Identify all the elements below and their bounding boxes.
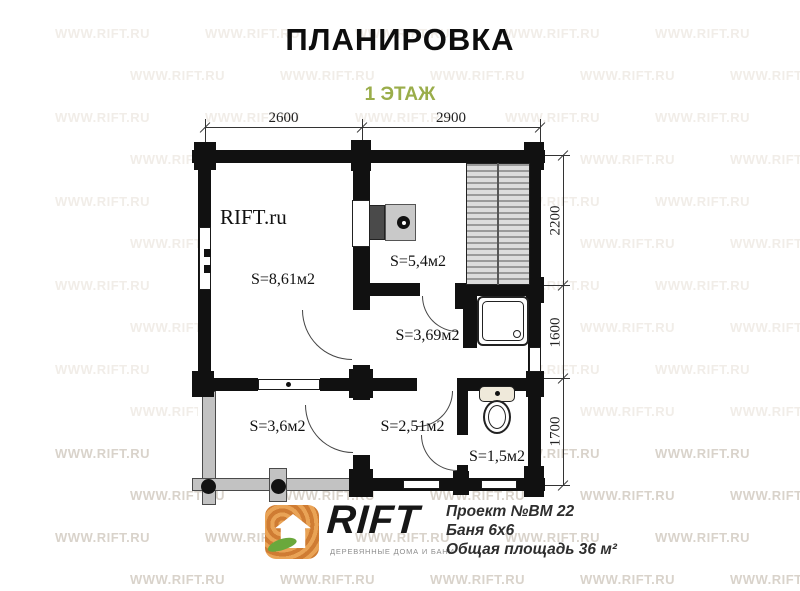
dimension-right-3: 1700: [548, 402, 565, 462]
project-area: Общая площадь 36 м²: [446, 540, 617, 559]
room-label-sauna: S=5,4м2: [373, 253, 463, 271]
watermark-text: WWW.RIFT.RU: [580, 68, 675, 83]
rift-logo-icon: [265, 505, 319, 559]
dimension-right-1: 2200: [548, 191, 565, 251]
watermark-text: WWW.RIFT.RU: [55, 110, 150, 125]
watermark-text: WWW.RIFT.RU: [730, 404, 800, 419]
dimension-top-left: 2600: [205, 110, 362, 127]
watermark-text: WWW.RIFT.RU: [55, 530, 150, 545]
project-number: Проект №ВМ 22: [446, 502, 617, 521]
room-label-washroom: S=3,69м2: [375, 327, 480, 345]
log-crossing: [192, 371, 214, 397]
log-crossing: [455, 283, 477, 309]
log-crossing: [349, 369, 373, 398]
plan-brand-label: RIFT.ru: [220, 205, 287, 230]
logo-tagline: ДЕРЕВЯННЫЕ ДОМА И БАНИ: [330, 547, 455, 556]
watermark-text: WWW.RIFT.RU: [730, 488, 800, 503]
window: [529, 347, 541, 372]
watermark-text: WWW.RIFT.RU: [55, 446, 150, 461]
terrace-log-post: [271, 479, 286, 494]
dimension-line-top: [205, 127, 540, 128]
log-crossing: [453, 471, 469, 495]
log-crossing: [351, 140, 371, 171]
terrace-log-post: [201, 479, 216, 494]
watermark-text: WWW.RIFT.RU: [730, 572, 800, 587]
watermark-text: WWW.RIFT.RU: [580, 236, 675, 251]
watermark-text: WWW.RIFT.RU: [580, 572, 675, 587]
dimension-top-right: 2900: [362, 110, 540, 127]
toilet-bowl-icon: [483, 400, 511, 434]
watermark-text: WWW.RIFT.RU: [580, 404, 675, 419]
room-label-wc: S=1,5м2: [452, 448, 542, 466]
logo-text: RIFT: [325, 498, 421, 543]
watermark-text: WWW.RIFT.RU: [430, 572, 525, 587]
watermark-text: WWW.RIFT.RU: [580, 488, 675, 503]
floor-plan-page: WWW.RIFT.RUWWW.RIFT.RUWWW.RIFT.RUWWW.RIF…: [0, 0, 800, 591]
room-label-terrace: S=3,6м2: [230, 418, 325, 436]
stove-icon: [369, 205, 385, 240]
watermark-text: WWW.RIFT.RU: [430, 68, 525, 83]
window: [199, 227, 211, 290]
watermark-text: WWW.RIFT.RU: [730, 68, 800, 83]
watermark-text: WWW.RIFT.RU: [655, 362, 750, 377]
room-label-hallway: S=2,51м2: [365, 418, 460, 436]
floor-subtitle: 1 ЭТАЖ: [0, 84, 800, 106]
shower-tray-icon: [477, 296, 529, 346]
dimension-right-2: 1600: [548, 303, 565, 363]
watermark-text: WWW.RIFT.RU: [55, 278, 150, 293]
page-title: ПЛАНИРОВКА: [0, 22, 800, 58]
watermark-text: WWW.RIFT.RU: [730, 152, 800, 167]
watermark-text: WWW.RIFT.RU: [655, 446, 750, 461]
room-label-rest-room: S=8,61м2: [213, 271, 353, 289]
log-crossing: [349, 469, 373, 497]
watermark-text: WWW.RIFT.RU: [130, 68, 225, 83]
watermark-text: WWW.RIFT.RU: [280, 68, 375, 83]
watermark-text: WWW.RIFT.RU: [655, 530, 750, 545]
watermark-text: WWW.RIFT.RU: [55, 362, 150, 377]
project-info: Проект №ВМ 22 Баня 6х6 Общая площадь 36 …: [446, 502, 617, 559]
window: [403, 480, 440, 489]
watermark-text: WWW.RIFT.RU: [580, 320, 675, 335]
watermark-text: WWW.RIFT.RU: [280, 572, 375, 587]
leaf-icon: [266, 535, 298, 555]
log-crossing: [194, 142, 216, 170]
sauna-door-leaf: [352, 200, 370, 247]
watermark-text: WWW.RIFT.RU: [730, 320, 800, 335]
log-crossing: [524, 466, 544, 497]
log-crossing: [526, 371, 544, 397]
watermark-text: WWW.RIFT.RU: [130, 572, 225, 587]
window: [481, 480, 517, 489]
project-type: Баня 6х6: [446, 521, 617, 540]
watermark-text: WWW.RIFT.RU: [655, 278, 750, 293]
watermark-text: WWW.RIFT.RU: [730, 236, 800, 251]
watermark-text: WWW.RIFT.RU: [580, 152, 675, 167]
watermark-text: WWW.RIFT.RU: [655, 110, 750, 125]
watermark-text: WWW.RIFT.RU: [55, 194, 150, 209]
watermark-text: WWW.RIFT.RU: [655, 194, 750, 209]
floor-plan: 2600 2900 2200 1600 1700: [190, 113, 590, 513]
